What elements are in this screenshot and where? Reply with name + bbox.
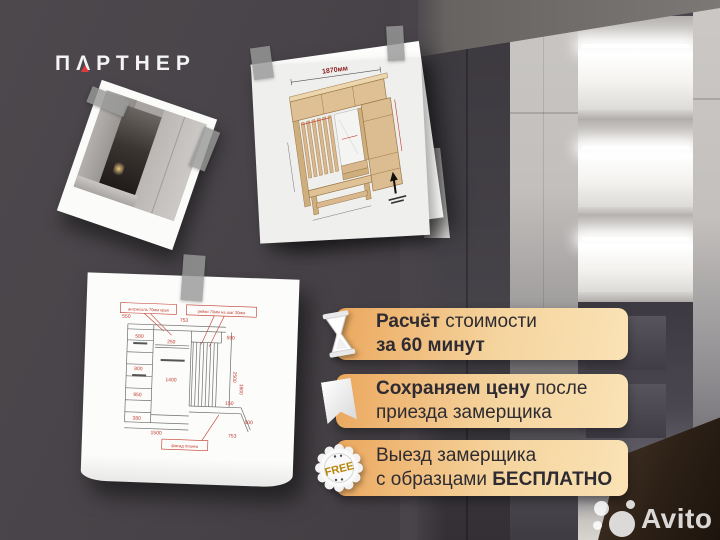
badge-line2: с образцами БЕСПЛАТНО	[376, 468, 628, 492]
tape-strip	[250, 46, 274, 80]
sketch-drawing-sheet: антресоль 70мм края рейки 70мм на шаг 30…	[80, 272, 299, 487]
wardrobe-sketch-drawing: антресоль 70мм края рейки 70мм на шаг 30…	[109, 299, 266, 462]
logo-letter: П	[55, 52, 76, 75]
svg-text:500: 500	[244, 420, 253, 426]
tape-strip	[180, 254, 205, 301]
badge-line1: Сохраняем цену после	[376, 377, 628, 401]
hallway-interior-photo	[74, 90, 207, 221]
partner-logo: ПΛРТНЕР	[55, 53, 196, 74]
sketch-label-top-left: антресоль 70мм края	[128, 306, 169, 312]
sketch-label-bottom: фасад планка	[171, 443, 199, 449]
svg-text:250: 250	[167, 339, 176, 345]
svg-text:753: 753	[228, 433, 237, 439]
logo-letters: РТНЕР	[96, 52, 196, 75]
svg-text:590: 590	[226, 335, 235, 341]
badge-line2: за 60 минут	[376, 334, 628, 358]
badge-free-visit: FREE Выезд замерщика с образцами БЕСПЛАТ…	[336, 440, 628, 496]
badge-price-hold: Сохраняем цену после приезда замерщика	[336, 374, 628, 428]
free-seal-icon: FREE	[314, 443, 364, 493]
svg-text:150: 150	[225, 401, 234, 407]
avito-logo-text: Avito	[641, 503, 712, 535]
svg-text:950: 950	[133, 392, 142, 398]
svg-text:1400: 1400	[165, 377, 177, 383]
badge-cost-estimate: Расчёт стоимости за 60 минут	[336, 308, 628, 360]
svg-text:580: 580	[135, 334, 144, 340]
avito-logo-icon	[592, 500, 638, 538]
lit-niche	[578, 16, 693, 110]
svg-text:1500: 1500	[150, 430, 162, 436]
avito-watermark: Avito	[592, 500, 712, 538]
svg-text:800: 800	[134, 366, 143, 372]
svg-text:2500: 2500	[231, 371, 237, 383]
svg-text:753: 753	[180, 318, 189, 324]
svg-text:380: 380	[132, 416, 141, 422]
lit-niche	[578, 120, 693, 207]
wardrobe-3d-drawing: 1870мм	[261, 50, 432, 231]
ad-canvas: ПΛРТНЕР 1870мм	[0, 0, 720, 540]
hourglass-icon	[318, 308, 359, 359]
sketch-label-top-right: рейки 70мм на шаг 30мм	[198, 309, 246, 316]
logo-letter-a: Λ	[76, 53, 96, 74]
badge-line1: Выезд замерщика	[376, 444, 628, 468]
width-dimension-label: 1870мм	[322, 65, 349, 76]
badge-line1: Расчёт стоимости	[376, 310, 628, 334]
svg-text:1600: 1600	[238, 384, 244, 396]
lit-niche	[578, 214, 693, 292]
logo-triangle-icon	[81, 65, 89, 72]
furniture-3d-drawing-sheet: 1870мм	[250, 41, 443, 241]
badge-line2: приезда замерщика	[376, 401, 628, 425]
svg-text:550: 550	[122, 314, 131, 320]
tape-strip	[386, 26, 405, 62]
